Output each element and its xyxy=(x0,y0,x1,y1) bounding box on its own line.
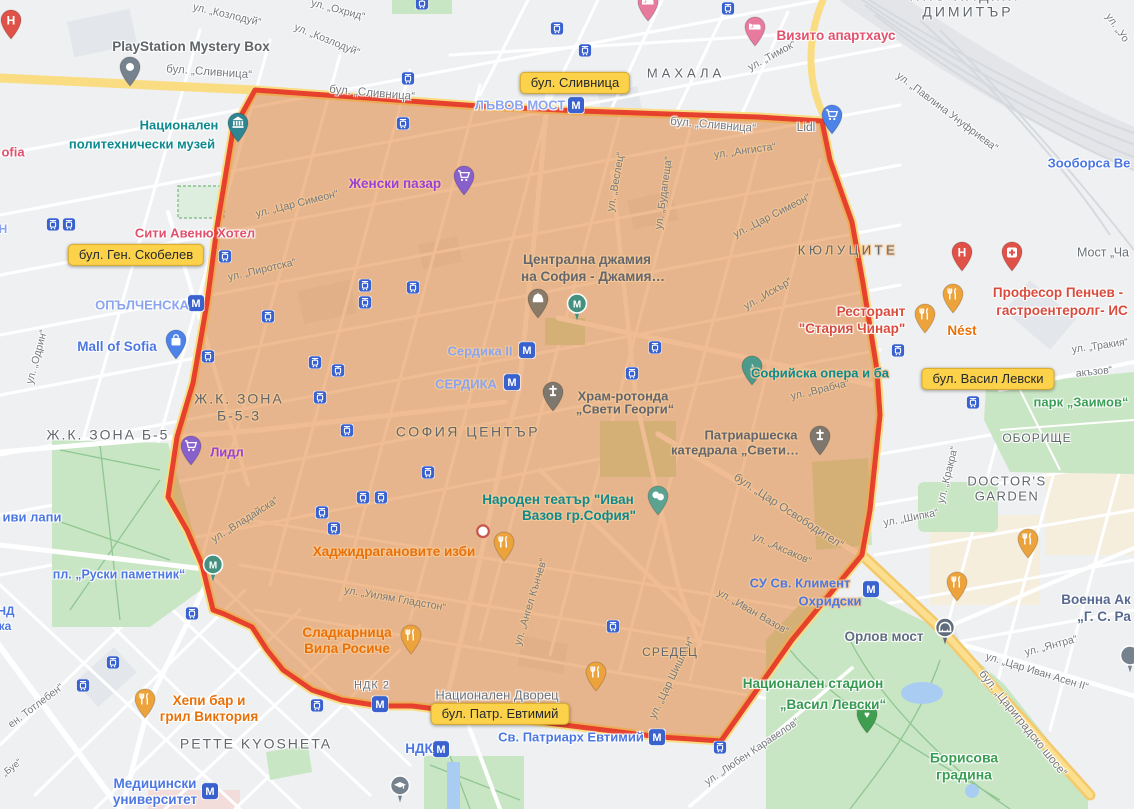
badge-slivnitsa[interactable]: бул. Сливница xyxy=(520,72,630,94)
stationlight-label[interactable]: СЕРДИКА xyxy=(435,376,497,391)
station-label[interactable]: НД xyxy=(0,604,15,618)
slate-label[interactable]: Орлов мост xyxy=(844,629,923,645)
street-label: ул. „Пиротска“ xyxy=(227,256,297,284)
street-label: ул. „Ангел Кънчев“ xyxy=(512,557,550,647)
street-label: ул. „Уилям Гладстон“ xyxy=(343,584,446,614)
stationlight-label[interactable]: Н xyxy=(0,222,7,236)
navy-label[interactable]: Военна Ак xyxy=(1061,592,1131,608)
station-label[interactable]: СУ Св. Климент xyxy=(750,575,851,590)
poigray-label[interactable]: Патриаршеска xyxy=(705,427,798,442)
teal-label[interactable]: Национален xyxy=(140,117,219,132)
badge-skobelev[interactable]: бул. Ген. Скобелев xyxy=(68,244,204,266)
street-label: бул. „Цар Освободител“ xyxy=(731,471,846,552)
street-label: бул. „Сливница“ xyxy=(670,116,757,137)
area-label: PETTE KYOSHETA xyxy=(180,736,332,753)
area-label: КЮЛУЦИТЕ xyxy=(798,242,898,257)
red-label[interactable]: Професор Пенчев - xyxy=(993,285,1123,301)
pink-label[interactable]: Сити Авеню Хотел xyxy=(135,225,255,240)
street-label: ул. „Цар Симеон“ xyxy=(731,191,812,240)
street-label: ул. „Любен Каравелов“ xyxy=(702,716,801,789)
dim-label: Lidl xyxy=(797,120,816,134)
area-label: ОБОРИЩЕ xyxy=(1002,431,1071,445)
street-label: ул. „Искър“ xyxy=(742,275,795,313)
teal-label[interactable]: Софийска опера и ба xyxy=(751,365,889,380)
street-label: ул. „Цар Симеон“ xyxy=(254,188,339,221)
street-label: ул. „Аксаков“ xyxy=(751,531,814,568)
badge-patr-evtimiy[interactable]: бул. Патр. Евтимий xyxy=(431,703,570,725)
area-label: DOCTOR'S GARDEN xyxy=(967,474,1046,505)
street-label: ул. „Веслец“ xyxy=(605,151,628,212)
station-label[interactable]: Зооборса Ве xyxy=(1048,155,1131,170)
street-label: бул. „Сливница“ xyxy=(329,84,416,105)
poigray-label[interactable]: „Свети Георги“ xyxy=(576,401,674,416)
poigray-label[interactable]: Централна джамия xyxy=(523,252,651,268)
street-label: ул. „Врабча“ xyxy=(790,377,851,402)
poigray-label[interactable]: на София - Джамия… xyxy=(521,269,665,285)
orange-label[interactable]: Nést xyxy=(947,323,976,339)
station-label[interactable]: НДК xyxy=(405,741,433,757)
station-label[interactable]: пл. „Руски паметник“ xyxy=(53,568,185,583)
area-label: СОФИЯ ЦЕНТЪР xyxy=(396,424,540,441)
street-label: „Буе“ xyxy=(0,757,24,780)
dim-label: Национален Дворец xyxy=(435,687,558,702)
station-label[interactable]: Медицински университет xyxy=(113,776,197,808)
street-label: ул. „Шипка“ xyxy=(882,507,939,530)
station-label[interactable]: Mall of Sofia xyxy=(77,339,157,355)
red-label[interactable]: гастроентеролг- ИС xyxy=(996,303,1128,319)
greendark-label[interactable]: Национален стадион xyxy=(743,676,883,692)
teal-label[interactable]: политехнически музей xyxy=(69,136,215,151)
street-label: ул. „Тракия“ xyxy=(1071,336,1129,356)
station-label[interactable]: ка xyxy=(0,619,11,633)
street-label: ул. „Ангиста“ xyxy=(713,141,776,162)
badge-vasil-levski[interactable]: бул. Васил Левски xyxy=(921,368,1054,390)
street-label: ул. „Одрин“ xyxy=(24,329,50,386)
teal-label[interactable]: Народен театър "Иван xyxy=(482,492,634,508)
street-label: ул. „Козлодуй“ xyxy=(292,21,361,59)
street-label: ул. „Козлодуй“ xyxy=(192,1,263,29)
station-label[interactable]: Св. Патриарх Евтимий xyxy=(498,729,644,744)
purple-label[interactable]: Лидл xyxy=(210,444,244,459)
street-label: ул. „Павлина Унуфриева“ xyxy=(894,70,1000,154)
station-label[interactable]: иви лапи xyxy=(3,509,62,524)
street-label: ул. „Янтра“ xyxy=(1023,633,1078,659)
area-label: ДИМИТЪР xyxy=(922,4,1013,21)
area-label: МАХАЛА xyxy=(647,65,725,80)
poigray-label[interactable]: катедрала „Свети… xyxy=(671,442,799,457)
navy-label[interactable]: „Г. С. Ра xyxy=(1077,609,1131,625)
stationlight-label[interactable]: ЛЪВОВ МОСТ xyxy=(475,97,566,112)
stationlight-label[interactable]: ОПЪЛЧЕНСКА xyxy=(95,297,189,312)
red-label[interactable]: "Стария Чинар" xyxy=(799,321,906,337)
orange-label[interactable]: Хаджидрагановите изби xyxy=(313,544,476,560)
dim-label: НДК 2 xyxy=(354,680,390,693)
street-label: ул. „Кракра“ xyxy=(935,445,961,504)
area-label: Ж.К. ЗОНА Б-5-3 xyxy=(194,390,283,423)
orange-label[interactable]: Сладкарница Вила Росиче xyxy=(302,625,391,657)
area-label: СРЕДЕЦ xyxy=(642,645,698,659)
pink-label[interactable]: Визито апартхаус xyxy=(776,28,895,44)
street-label: ул. „Иван Вазов“ xyxy=(715,587,791,638)
map-labels-layer: ул. „Козлодуй“ул. „Охрид“ул. „Козлодуй“б… xyxy=(0,0,1134,809)
station-label[interactable]: Охридски xyxy=(798,593,861,608)
area-label: Ж.К. ЗОНА Б-5 xyxy=(47,427,170,444)
stationlight-label[interactable]: Сердика II xyxy=(447,343,512,358)
street-label: ул. „Владайска“ xyxy=(209,494,281,545)
street-label: ул. „Будапеща“ xyxy=(653,156,675,231)
street-label: ул. „Охрид“ xyxy=(310,0,366,23)
red-label[interactable]: Ресторант xyxy=(837,304,906,320)
dim-label: Мост „Ча xyxy=(1077,246,1129,261)
street-label: бул. „Сливница“ xyxy=(166,63,253,83)
gray-label[interactable]: PlayStation Mystery Box xyxy=(112,39,270,55)
street-label: ен. Тотлебен“ xyxy=(6,681,66,731)
green-label[interactable]: парк „Заимов“ xyxy=(1034,394,1129,409)
orange-label[interactable]: Хепи бар и грил Виктория xyxy=(160,693,258,725)
street-label: акъзов“ xyxy=(1075,364,1113,380)
street-label: ул. „Уо xyxy=(1103,11,1132,45)
map-viewport[interactable]: МММММММММHHММ♪♥ ул. „Козлодуй“ул. „Охрид… xyxy=(0,0,1134,809)
greendark-label[interactable]: „Васил Левски“ xyxy=(780,697,886,713)
purple-label[interactable]: Женски пазар xyxy=(349,176,441,192)
pink-label[interactable]: ofia xyxy=(1,144,24,159)
teal-label[interactable]: Вазов гр.София" xyxy=(522,508,636,524)
green-label[interactable]: Борисова градина xyxy=(930,749,998,782)
